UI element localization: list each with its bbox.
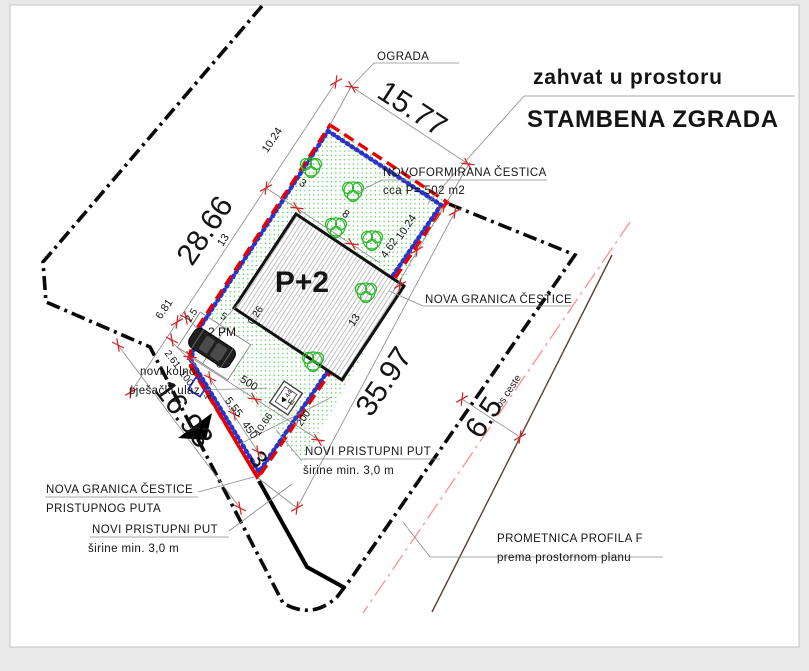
label-novoformirana-cestica: NOVOFORMIRANA ČESTICA — [383, 166, 547, 179]
label-granica-puta-1: NOVA GRANICA ČESTICE — [46, 483, 193, 496]
label-pristupni-put-2: širine min. 3,0 m — [303, 465, 394, 477]
label-pristupni-put-1: NOVI PRISTUPNI PUT — [305, 446, 431, 458]
label-granica-puta-2: PRISTUPNOG PUTA — [46, 503, 161, 515]
building-label: P+2 — [275, 266, 329, 299]
label-nova-granica-cestice: NOVA GRANICA ČESTICE — [425, 293, 572, 306]
site-plan-drawing: 44 E zahvat u prostoru STAMBENA ZGRADA O… — [0, 0, 809, 671]
site-plan-svg: 44 E zahvat u prostoru STAMBENA ZGRADA O… — [0, 0, 809, 671]
label-pristupni-put-donji-2: širine min. 3,0 m — [88, 543, 179, 555]
label-novoformirana-area: cca P= 502 m2 — [383, 185, 465, 197]
label-pristupni-put-donji-1: NOVI PRISTUPNI PUT — [92, 524, 218, 536]
vodomjer-label: vo — [204, 394, 212, 401]
title-subtitle: zahvat u prostoru — [533, 66, 723, 89]
label-ograda: OGRADA — [377, 51, 429, 63]
label-prometnica-1: PROMETNICA PROFILA F — [497, 533, 643, 545]
title-main: STAMBENA ZGRADA — [527, 106, 779, 133]
label-prometnica-2: prema prostornom planu — [497, 552, 631, 564]
parking-label: 2 PM — [208, 325, 236, 339]
